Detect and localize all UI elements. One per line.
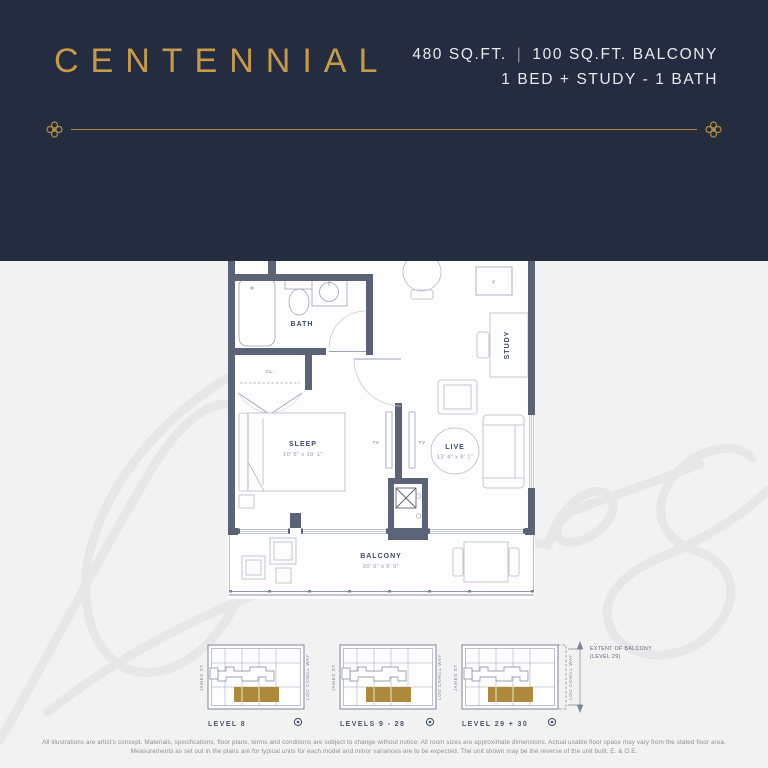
gold-divider-line xyxy=(71,129,697,130)
balcony-extent-dashed-outline xyxy=(558,645,566,709)
disclaimer-line2: Measurements as set out in the plans are… xyxy=(0,748,768,757)
keyplan-level-8: JAMES ST. LOU CAHILL WAY LEVEL 8 xyxy=(196,637,326,732)
stats-divider: | xyxy=(517,46,523,63)
balcony-extent-note-line2: (LEVEL 29) xyxy=(590,654,621,660)
balcony-area: 100 SQ.FT. BALCONY xyxy=(532,46,718,63)
compass-icon xyxy=(426,718,433,725)
street-label-james-st: JAMES ST. xyxy=(453,663,458,692)
street-label-james-st: JAMES ST. xyxy=(199,663,204,692)
street-label-lou-cahill-way: LOU CAHILL WAY xyxy=(305,654,310,700)
quatrefoil-icon-left xyxy=(46,121,63,138)
unit-stats: 480 SQ.FT.|100 SQ.FT. BALCONY 1 BED + ST… xyxy=(412,46,718,89)
street-label-james-st: JAMES ST. xyxy=(331,663,336,692)
floorplan-brochure-page: CENTENNIAL 480 SQ.FT.|100 SQ.FT. BALCONY… xyxy=(0,0,768,768)
disclaimer: All illustrations are artist's concept. … xyxy=(0,739,768,756)
keyplan-label: LEVEL 29 + 30 xyxy=(462,721,528,728)
unit-name: CENTENNIAL xyxy=(54,42,389,81)
street-label-lou-cahill-way: LOU CAHILL WAY xyxy=(437,654,442,700)
header: CENTENNIAL 480 SQ.FT.|100 SQ.FT. BALCONY… xyxy=(0,0,768,261)
label-tv-left: TV xyxy=(373,440,380,445)
unit-area: 480 SQ.FT. xyxy=(412,46,506,63)
room-label-sleep: SLEEP xyxy=(289,441,317,448)
ornament-divider xyxy=(46,121,722,137)
mechanical-shaft xyxy=(394,484,422,528)
compass-icon xyxy=(548,718,555,725)
room-dims-live: 13' 4" x 8' 1" xyxy=(437,455,473,461)
keyplan-level-29-30: JAMES ST. LOU CAHILL WAY LEVEL 29 + 30 E… xyxy=(450,637,700,732)
balcony-extent-note-line1: EXTENT OF BALCONY xyxy=(590,646,652,652)
room-label-study: STUDY xyxy=(504,331,511,360)
label-fridge: F xyxy=(492,280,495,285)
unit-configuration: 1 BED + STUDY - 1 BATH xyxy=(412,71,718,89)
quatrefoil-icon-right xyxy=(705,121,722,138)
room-label-live: LIVE xyxy=(445,444,465,451)
label-closet-bedroom: CL. xyxy=(266,369,275,374)
label-tv-right: TV xyxy=(419,440,426,445)
room-label-bath: BATH xyxy=(291,321,314,328)
room-label-balcony: BALCONY xyxy=(360,553,402,560)
room-dims-sleep: 10' 5" x 10' 1" xyxy=(283,452,323,458)
street-label-lou-cahill-way: LOU CAHILL WAY xyxy=(568,654,573,700)
unit-stats-line1: 480 SQ.FT.|100 SQ.FT. BALCONY xyxy=(412,46,718,64)
keyplan-label: LEVELS 9 - 28 xyxy=(340,721,405,728)
disclaimer-line1: All illustrations are artist's concept. … xyxy=(0,739,768,748)
keyplan-levels-9-28: JAMES ST. LOU CAHILL WAY LEVELS 9 - 28 xyxy=(328,637,458,732)
keyplan-label: LEVEL 8 xyxy=(208,721,246,728)
room-dims-balcony: 20' 0" x 5' 0" xyxy=(363,564,399,570)
compass-icon xyxy=(294,718,301,725)
